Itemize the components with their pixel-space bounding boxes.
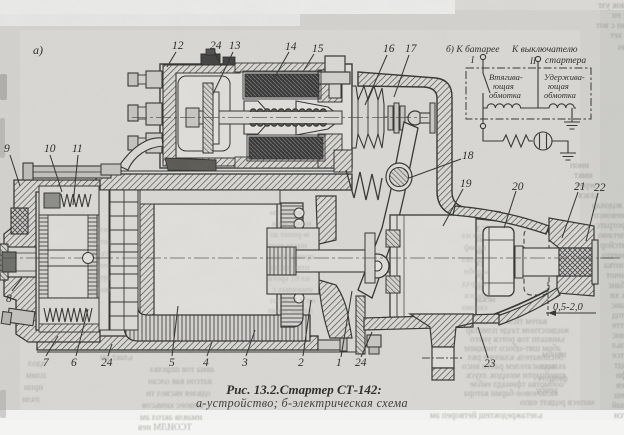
svg-text:ТСОИЛМ иев: ТСОИЛМ иев [138, 422, 192, 432]
svg-text:имаялв акгол ам: имаялв акгол ам [140, 412, 203, 422]
svg-text:ьлетажредоктещ йетвореп ам: ьлетажредоктещ йетвореп ам [430, 410, 543, 420]
svg-text:ветсн: ветсн [614, 410, 624, 420]
